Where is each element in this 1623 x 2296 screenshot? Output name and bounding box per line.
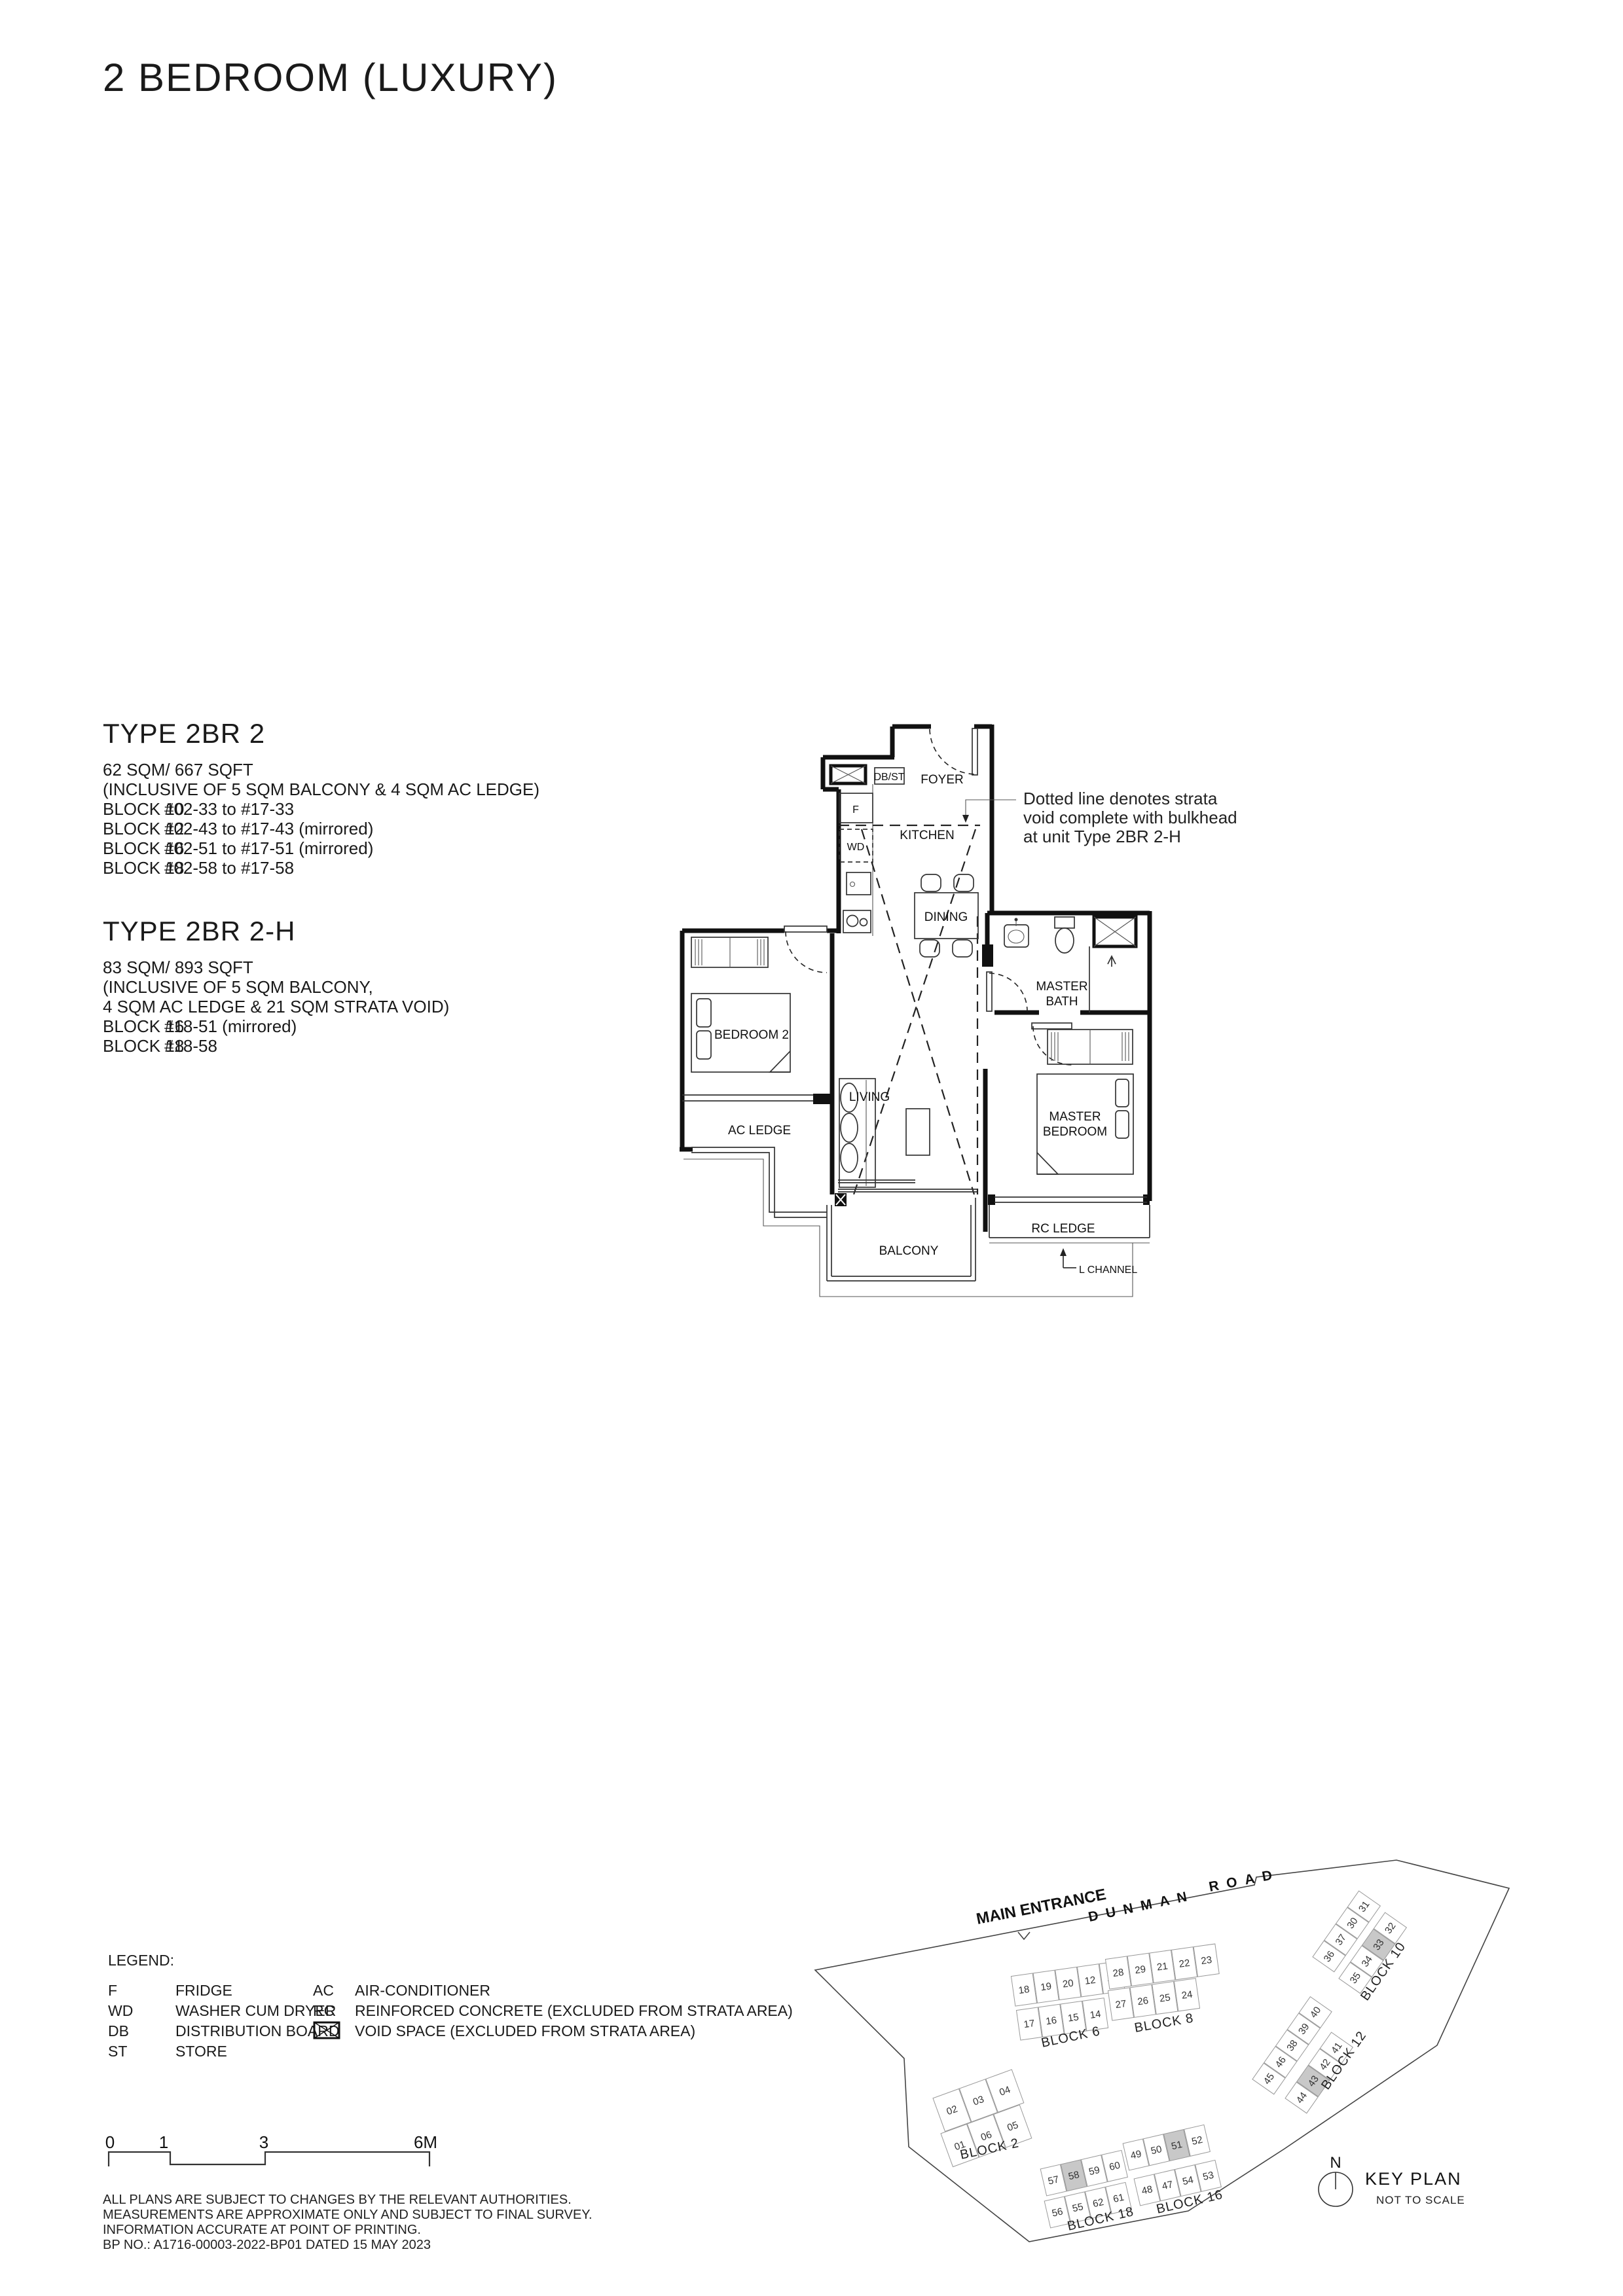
keyplan-unit-21: 21	[1150, 1950, 1175, 1982]
keyplan-unit-26: 26	[1130, 1984, 1156, 2017]
legend-label: VOID SPACE (EXCLUDED FROM STRATA AREA)	[355, 2022, 695, 2040]
type-2br2-block-row: BLOCK 10 #02-33 to #17-33	[103, 799, 539, 819]
disclaimer-line: BP NO.: A1716-00003-2022-BP01 DATED 15 M…	[103, 2238, 593, 2253]
block-units: #18-58	[164, 1036, 217, 1056]
kitchen-label: KITCHEN	[900, 829, 954, 842]
keyplan-unit-23: 23	[1194, 1944, 1219, 1977]
foyer-label: FOYER	[921, 773, 963, 787]
svg-text:25: 25	[1159, 1992, 1171, 2004]
disclaimer-line: INFORMATION ACCURATE AT POINT OF PRINTIN…	[103, 2223, 593, 2238]
scale-3: 3	[259, 2132, 268, 2152]
master-bedroom-furniture	[1037, 1030, 1133, 1174]
disclaimer-line: MEASUREMENTS ARE APPROXIMATE ONLY AND SU…	[103, 2208, 593, 2223]
master-bedroom-label2: BEDROOM	[1043, 1125, 1107, 1139]
svg-text:15: 15	[1067, 2011, 1080, 2024]
keyplan-unit-19: 19	[1033, 1970, 1059, 2003]
svg-text:22: 22	[1178, 1958, 1191, 1970]
dbst-label: DB/ST	[873, 772, 904, 783]
type-2br2-area: 62 SQM/ 667 SQFT	[103, 760, 539, 780]
scale-bar: 0 1 3 6M	[98, 2128, 465, 2174]
type-2br2h-block-row: BLOCK 18 #18-58	[103, 1036, 449, 1056]
coffee-table	[906, 1109, 930, 1155]
svg-text:27: 27	[1115, 1998, 1127, 2011]
type-2br2h-section: TYPE 2BR 2-H 83 SQM/ 893 SQFT (INCLUSIVE…	[103, 916, 449, 1056]
svg-text:18: 18	[1018, 1984, 1030, 1996]
l-channel-arrow	[1060, 1248, 1067, 1256]
keyplan-blocks: 181920121317161514BLOCK 6282921222327262…	[933, 1891, 1408, 2234]
annotation-line: void complete with bulkhead	[1023, 808, 1237, 827]
keyplan-unit-18: 18	[1011, 1973, 1036, 2006]
scale-6m: 6M	[414, 2132, 437, 2152]
block-units: #02-33 to #17-33	[164, 799, 294, 819]
svg-text:16: 16	[1045, 2015, 1057, 2027]
scale-1: 1	[159, 2132, 168, 2152]
wall-stub	[988, 1194, 995, 1205]
key-plan: MAIN ENTRANCE DUNMAN ROAD 18192012131716…	[812, 1833, 1558, 2296]
entrance-door	[930, 728, 977, 775]
north-arrow: N	[1319, 2154, 1353, 2206]
block-units: #18-51 (mirrored)	[164, 1016, 297, 1036]
type-2br2-block-row: BLOCK 12 #02-43 to #17-43 (mirrored)	[103, 819, 539, 838]
master-bath-label2: BATH	[1046, 995, 1078, 1009]
svg-text:26: 26	[1137, 1995, 1149, 2007]
type-2br2h-block-row: BLOCK 16 #18-51 (mirrored)	[103, 1016, 449, 1036]
wall-stub	[813, 1094, 832, 1104]
legend-label: REINFORCED CONCRETE (EXCLUDED FROM STRAT…	[355, 2002, 793, 2020]
wall-stub	[1143, 1194, 1150, 1205]
main-entrance-arrow	[1018, 1932, 1030, 1939]
legend-label: FRIDGE	[175, 1982, 232, 2000]
legend-key: RC	[313, 2002, 335, 2020]
rc-ledge-label: RC LEDGE	[1031, 1222, 1095, 1236]
ac-ledge-label: AC LEDGE	[728, 1124, 791, 1138]
keyplan-unit-20: 20	[1055, 1967, 1081, 2000]
block-name: BLOCK 12	[103, 819, 164, 838]
svg-text:24: 24	[1181, 1989, 1194, 2001]
keyplan-unit-24: 24	[1174, 1979, 1199, 2011]
block-units: #02-51 to #17-51 (mirrored)	[164, 838, 373, 858]
type-2br2-inclusive: (INCLUSIVE OF 5 SQM BALCONY & 4 SQM AC L…	[103, 780, 539, 799]
balcony-outline	[827, 1180, 977, 1281]
bath-door	[987, 972, 992, 1011]
strata-void-dashed-lines	[839, 825, 980, 1194]
legend-void-icon	[313, 2021, 340, 2039]
main-entrance-label: MAIN ENTRANCE	[975, 1886, 1108, 1928]
block-units: #02-58 to #17-58	[164, 858, 294, 878]
svg-text:19: 19	[1040, 1981, 1052, 1993]
wd-label: WD	[847, 842, 865, 853]
svg-text:29: 29	[1134, 1964, 1146, 1976]
legend-label: STORE	[175, 2043, 227, 2060]
legend-key: DB	[108, 2022, 129, 2040]
svg-text:12: 12	[1084, 1975, 1097, 1987]
type-2br2h-inclusive: 4 SQM AC LEDGE & 21 SQM STRATA VOID)	[103, 997, 449, 1016]
legend-label: WASHER CUM DRYER	[175, 2002, 336, 2020]
keyplan-unit-27: 27	[1108, 1988, 1133, 2020]
keyplan-subtitle: NOT TO SCALE	[1376, 2194, 1465, 2206]
balcony-label: BALCONY	[879, 1244, 939, 1258]
keyplan-unit-22: 22	[1171, 1947, 1197, 1980]
keyplan-title: KEY PLAN	[1365, 2169, 1462, 2189]
type-2br2h-area: 83 SQM/ 893 SQFT	[103, 958, 449, 977]
keyplan-unit-25: 25	[1152, 1981, 1178, 2014]
bedroom2-label: BEDROOM 2	[714, 1028, 789, 1042]
legend-title: LEGEND:	[108, 1952, 174, 1969]
legend-key: F	[108, 1982, 117, 2000]
keyplan-unit-17: 17	[1016, 2007, 1042, 2040]
block-name: BLOCK 16	[103, 1016, 164, 1036]
type-2br2-section: TYPE 2BR 2 62 SQM/ 667 SQFT (INCLUSIVE O…	[103, 718, 539, 878]
type-2br2-block-row: BLOCK 18 #02-58 to #17-58	[103, 858, 539, 878]
svg-text:23: 23	[1200, 1954, 1213, 1967]
strata-void-annotation: Dotted line denotes strata void complete…	[1023, 789, 1237, 846]
svg-text:14: 14	[1089, 2009, 1102, 2021]
annotation-line: at unit Type 2BR 2-H	[1023, 827, 1237, 846]
svg-text:28: 28	[1112, 1967, 1125, 1979]
block-name: BLOCK 18	[103, 858, 164, 878]
svg-text:20: 20	[1062, 1977, 1074, 1990]
type-2br2-name: TYPE 2BR 2	[103, 718, 539, 749]
north-label: N	[1330, 2154, 1341, 2172]
keyplan-unit-28: 28	[1105, 1956, 1131, 1989]
annotation-line: Dotted line denotes strata	[1023, 789, 1237, 808]
page-title: 2 BEDROOM (LUXURY)	[103, 55, 558, 100]
block-name: BLOCK 18	[103, 1036, 164, 1056]
scale-0: 0	[105, 2132, 115, 2152]
bedroom2-door	[784, 926, 827, 932]
legend-label: AIR-CONDITIONER	[355, 1982, 490, 2000]
annotation-leader	[962, 800, 1016, 823]
block-units: #02-43 to #17-43 (mirrored)	[164, 819, 373, 838]
type-2br2h-inclusive: (INCLUSIVE OF 5 SQM BALCONY,	[103, 977, 449, 997]
block-name: BLOCK 16	[103, 838, 164, 858]
toilet	[1055, 917, 1074, 928]
block-name: BLOCK 10	[103, 799, 164, 819]
keyplan-unit-29: 29	[1127, 1953, 1153, 1986]
master-bath-label: MASTER	[1036, 980, 1087, 994]
type-2br2h-name: TYPE 2BR 2-H	[103, 916, 449, 947]
living-label: LIVING	[849, 1090, 890, 1104]
l-channel-label: L CHANNEL	[1079, 1265, 1137, 1276]
wall-stub	[982, 944, 993, 967]
keyplan-unit-12: 12	[1077, 1964, 1103, 1997]
svg-text:17: 17	[1023, 2018, 1036, 2030]
master-bedroom-label: MASTER	[1049, 1110, 1101, 1124]
legend-key: WD	[108, 2002, 133, 2020]
disclaimer-line: ALL PLANS ARE SUBJECT TO CHANGES BY THE …	[103, 2193, 593, 2208]
bedroom2-furniture	[691, 926, 827, 1072]
legend-key: AC	[313, 1982, 334, 2000]
road-name-road: ROAD	[1208, 1866, 1281, 1895]
fridge-label: F	[852, 804, 859, 816]
svg-text:21: 21	[1156, 1960, 1169, 1973]
type-2br2-block-row: BLOCK 16 #02-51 to #17-51 (mirrored)	[103, 838, 539, 858]
bed	[1037, 1074, 1133, 1174]
disclaimer: ALL PLANS ARE SUBJECT TO CHANGES BY THE …	[103, 2193, 593, 2253]
legend-key: ST	[108, 2043, 127, 2060]
brochure-page: 2 BEDROOM (LUXURY) TYPE 2BR 2 62 SQM/ 66…	[0, 0, 1623, 2296]
dining-label: DINING	[924, 910, 968, 924]
shower-icon	[1108, 956, 1116, 967]
